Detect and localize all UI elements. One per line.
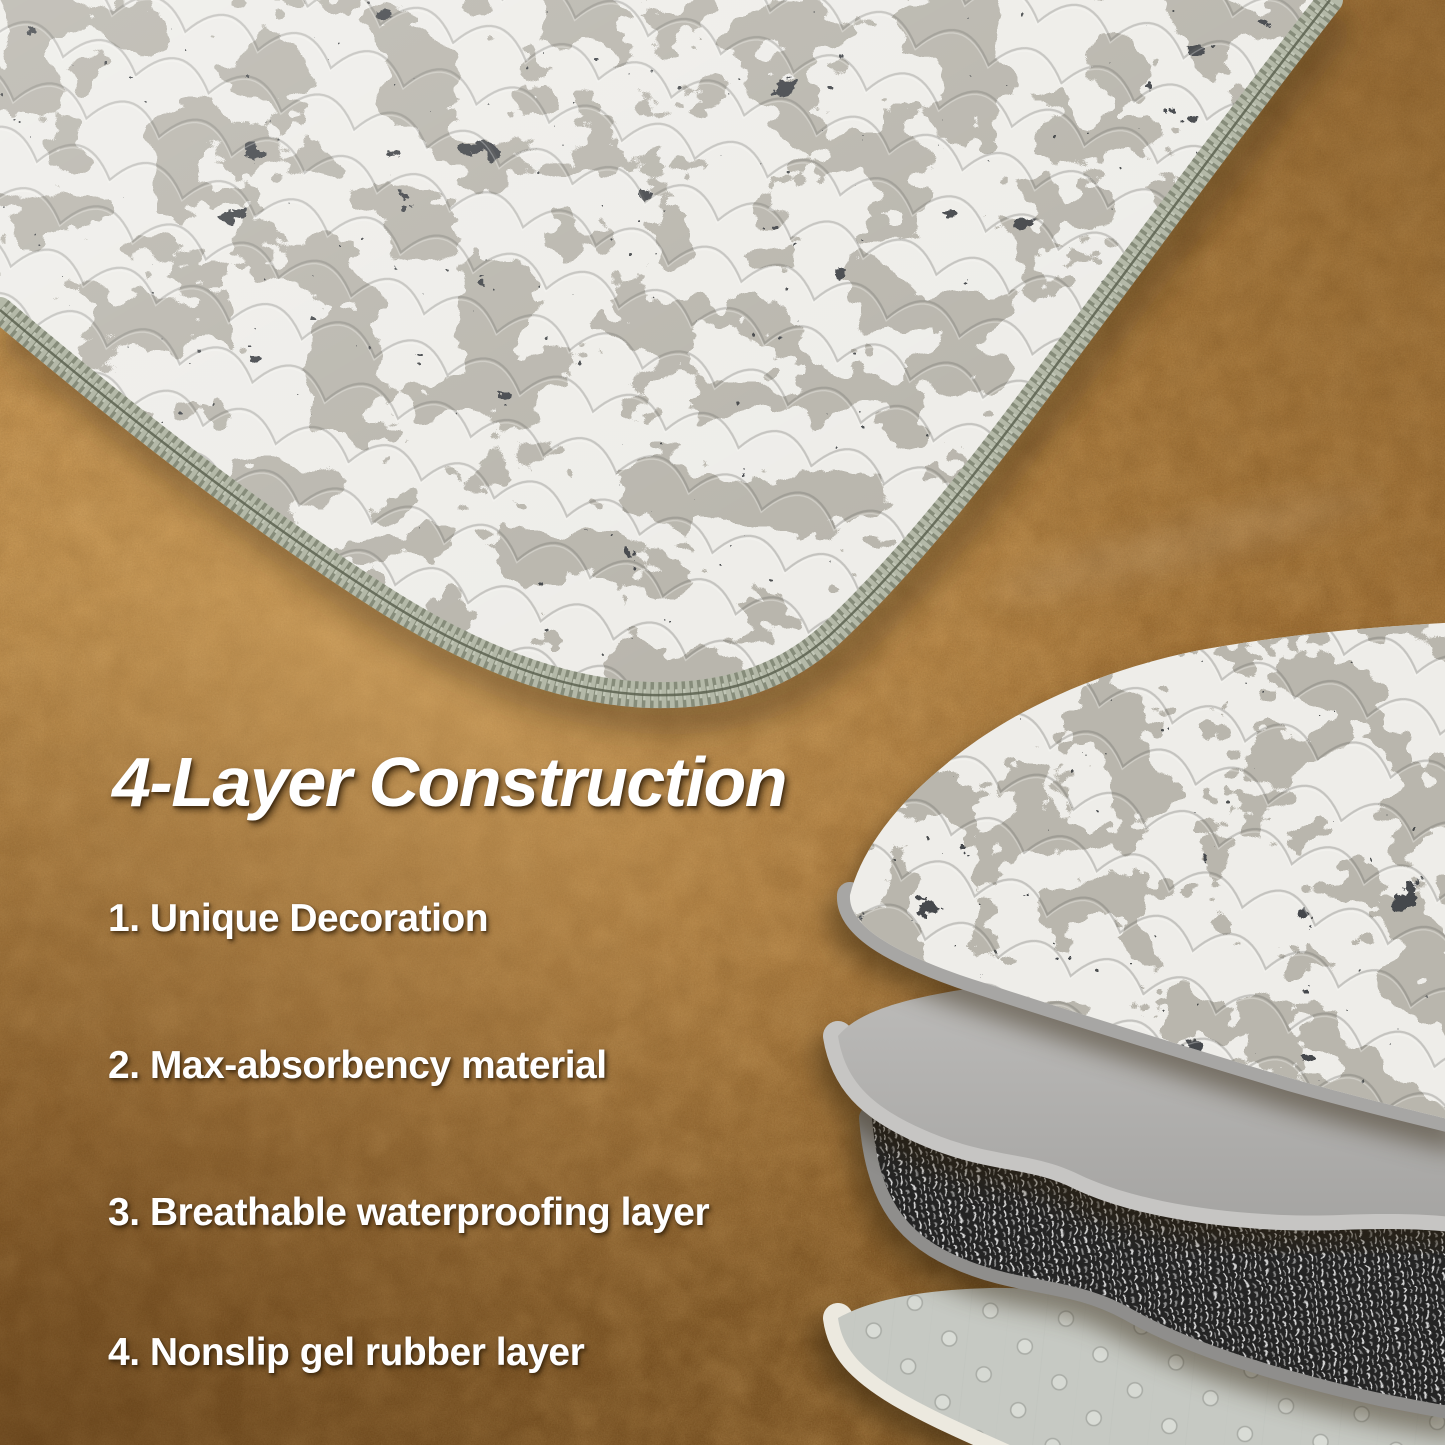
product-infographic: 4-Layer Construction 1. Unique Decoratio…: [0, 0, 1445, 1445]
scene-illustration: [0, 0, 1445, 1445]
